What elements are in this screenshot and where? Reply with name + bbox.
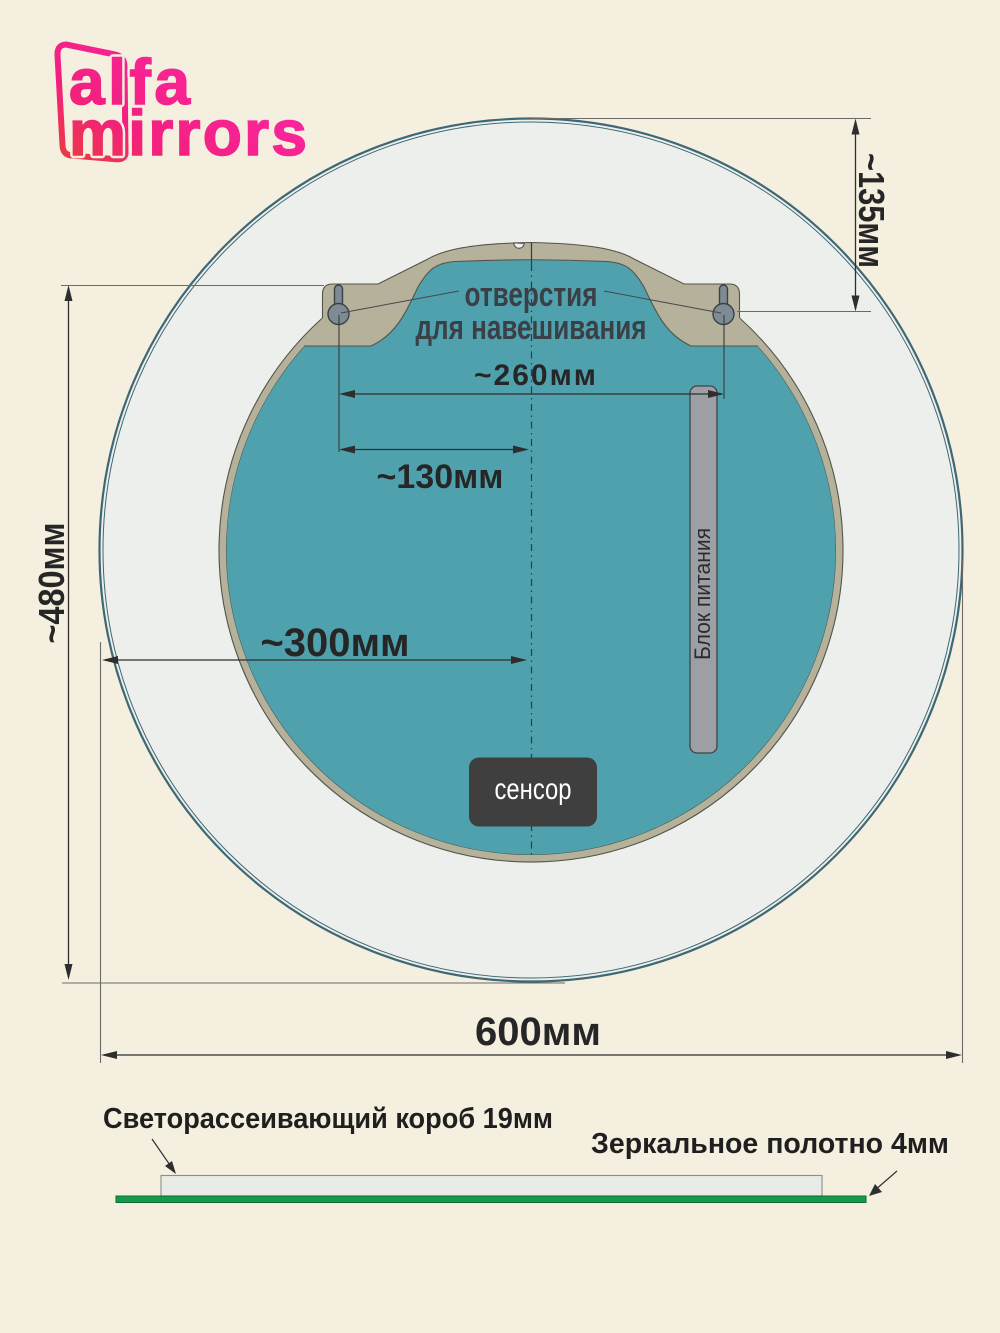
svg-text:~135мм: ~135мм: [851, 153, 892, 268]
svg-text:Зеркальное полотно 4мм: Зеркальное полотно 4мм: [591, 1128, 949, 1160]
svg-text:Светорассеивающий короб 19мм: Светорассеивающий короб 19мм: [103, 1103, 553, 1135]
svg-text:~260мм: ~260мм: [474, 359, 598, 392]
svg-text:~300мм: ~300мм: [260, 621, 409, 665]
svg-text:Блок питания: Блок питания: [690, 528, 715, 660]
svg-text:mirrors: mirrors: [69, 97, 307, 169]
svg-text:сенсор: сенсор: [495, 773, 572, 806]
svg-text:для навешивания: для навешивания: [416, 309, 647, 347]
svg-text:~130мм: ~130мм: [377, 458, 504, 496]
svg-text:~480мм: ~480мм: [31, 523, 72, 644]
svg-text:600мм: 600мм: [475, 1010, 601, 1054]
